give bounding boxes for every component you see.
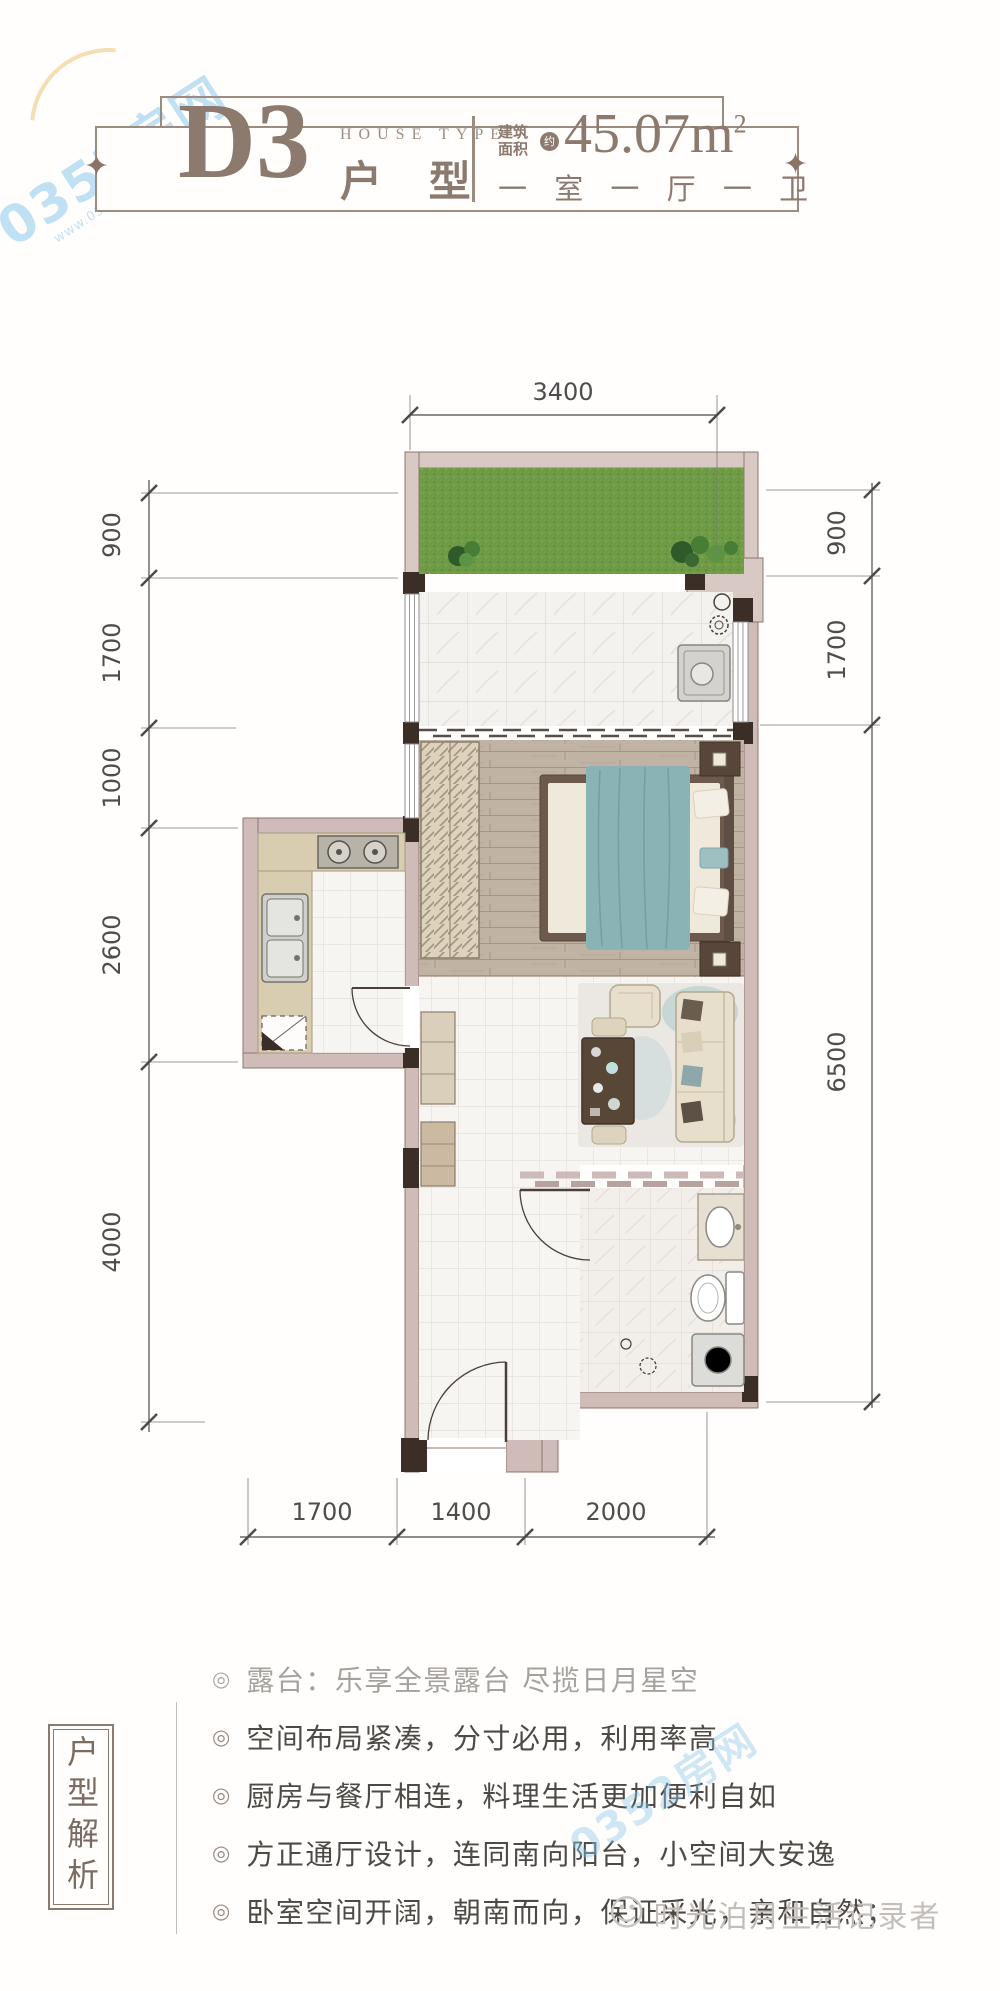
coffee-table-icon: [582, 1038, 634, 1124]
dim-label: 6500: [823, 1031, 851, 1092]
dim-label: 900: [98, 512, 126, 558]
dim-label: 3400: [532, 378, 593, 406]
dim-right: 900 1700 6500: [760, 482, 880, 1410]
nightstand-icon: [700, 942, 740, 976]
tap-icon: [714, 594, 730, 610]
dryer-icon: [692, 1334, 744, 1386]
bedroom: [405, 740, 744, 977]
dim-label: 1700: [823, 619, 851, 680]
dim-label: 2600: [98, 914, 126, 975]
bullet-icon: ◎: [212, 1785, 230, 1806]
bullet-icon: ◎: [212, 1901, 230, 1922]
dim-label: 900: [823, 510, 851, 556]
chair-icon: [592, 1126, 626, 1144]
bullet-icon: ◎: [212, 1843, 230, 1864]
toilet-icon: [691, 1272, 744, 1324]
balcony-window-right: [733, 622, 748, 722]
chair-icon: [592, 1018, 626, 1036]
balcony-window-left: [405, 594, 419, 722]
terrace: [419, 468, 744, 574]
balcony: [405, 592, 748, 740]
floorplan-page: 0352房网 www.0352fang.com ✦ ✦ D3 HOUSE TYP…: [0, 0, 1000, 1991]
entry: [419, 1122, 580, 1472]
nightstand-icon: [700, 742, 740, 776]
footer-watermark-text: 时光泊月生活记录者: [654, 1892, 942, 1936]
dim-label: 4000: [98, 1211, 126, 1272]
bed-icon: [540, 766, 734, 950]
kitchen-sink-icon: [262, 894, 308, 982]
washing-machine-icon: [678, 645, 730, 701]
dim-label: 2000: [585, 1498, 646, 1526]
dim-label: 1400: [430, 1498, 491, 1526]
tv-cabinet-icon: [421, 1012, 455, 1104]
kitchen: [258, 833, 421, 1053]
bullet-icon: ◎: [212, 1727, 230, 1748]
dim-label: 1700: [291, 1498, 352, 1526]
dim-label: 1000: [98, 747, 126, 808]
stove-icon: [318, 836, 398, 868]
bathroom-sink-icon: [698, 1194, 744, 1260]
fridge-space-icon: [262, 1016, 306, 1050]
wardrobe-icon: [421, 742, 479, 958]
dim-label: 1700: [98, 622, 126, 683]
analysis-divider: [176, 1702, 177, 1934]
sofa-icon: [676, 992, 734, 1142]
bullet-item: ◎ 空间布局紧凑，分寸必用，利用率高: [212, 1708, 912, 1766]
bedroom-window-left: [405, 744, 419, 818]
bullet-icon: ◎: [212, 1669, 230, 1690]
shoe-cabinet-icon: [421, 1122, 455, 1186]
analysis-title: 户型解析: [58, 1735, 104, 1899]
sliding-door: [419, 726, 733, 740]
entry-floor: [419, 1165, 580, 1440]
analysis-title-box: 户型解析: [48, 1724, 114, 1910]
smiley-icon: ☺: [608, 1896, 646, 1932]
bullet-item: ◎ 厨房与餐厅相连，料理生活更加便利自如: [212, 1766, 912, 1824]
bullet-item: ◎ 露台：乐享全景露台 尽揽日月星空: [212, 1650, 912, 1708]
living-dining: [419, 977, 744, 1165]
footer-watermark: ☺ 时光泊月生活记录者: [608, 1892, 942, 1936]
